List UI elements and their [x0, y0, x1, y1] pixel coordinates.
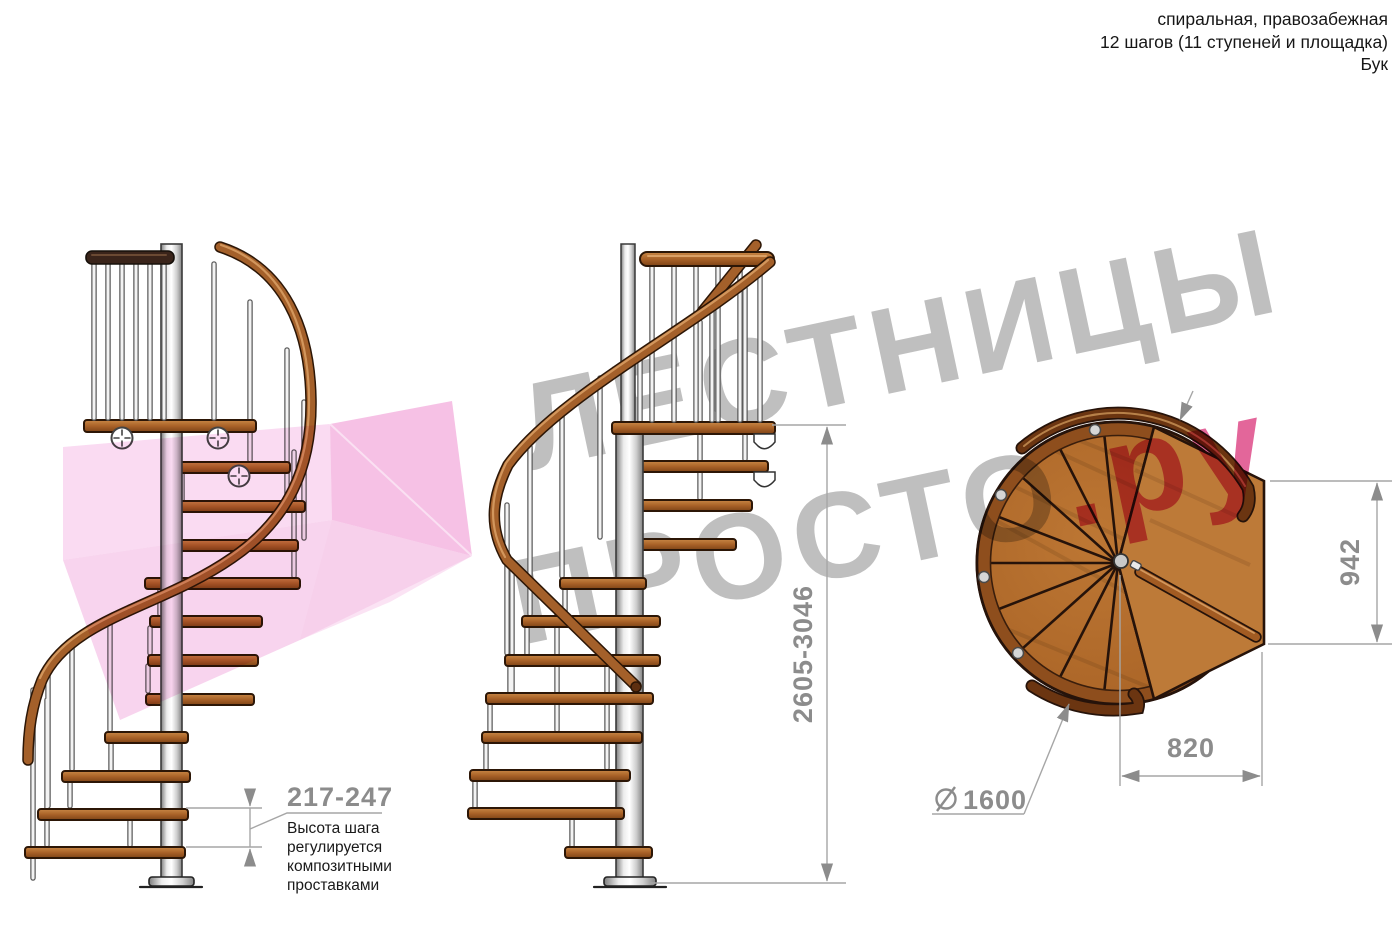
step-height-note-4: проставками: [287, 877, 379, 894]
landing-width-value: 820: [1167, 733, 1215, 763]
technical-drawing-sheet: ЛЕСТНИЦЫ ПРОСТО.ру: [0, 0, 1400, 951]
step-height-value: 217-247: [287, 782, 393, 812]
dimension-landing-depth: [1268, 481, 1392, 644]
diameter-value: 1600: [963, 785, 1027, 815]
step-height-note-3: композитными: [287, 858, 392, 875]
title-line-type: спиральная, правозабежная: [1100, 8, 1388, 31]
title-line-steps: 12 шагов (11 ступеней и площадка): [1100, 31, 1388, 54]
annotation-layer: 217-247 Высота шага регулируется компози…: [0, 0, 1400, 951]
step-height-note-1: Высота шага: [287, 820, 380, 837]
step-height-note-2: регулируется: [287, 839, 382, 856]
total-height-value: 2605-3046: [788, 585, 818, 723]
plan-leader-arrow: [1180, 391, 1193, 420]
top-handrail: [640, 252, 774, 266]
middle-side-view: [468, 244, 775, 887]
title-block: спиральная, правозабежная 12 шагов (11 с…: [1100, 8, 1388, 76]
diameter-symbol-icon: [937, 787, 956, 811]
title-line-material: Бук: [1100, 53, 1388, 76]
landing-depth-value: 942: [1335, 538, 1365, 586]
